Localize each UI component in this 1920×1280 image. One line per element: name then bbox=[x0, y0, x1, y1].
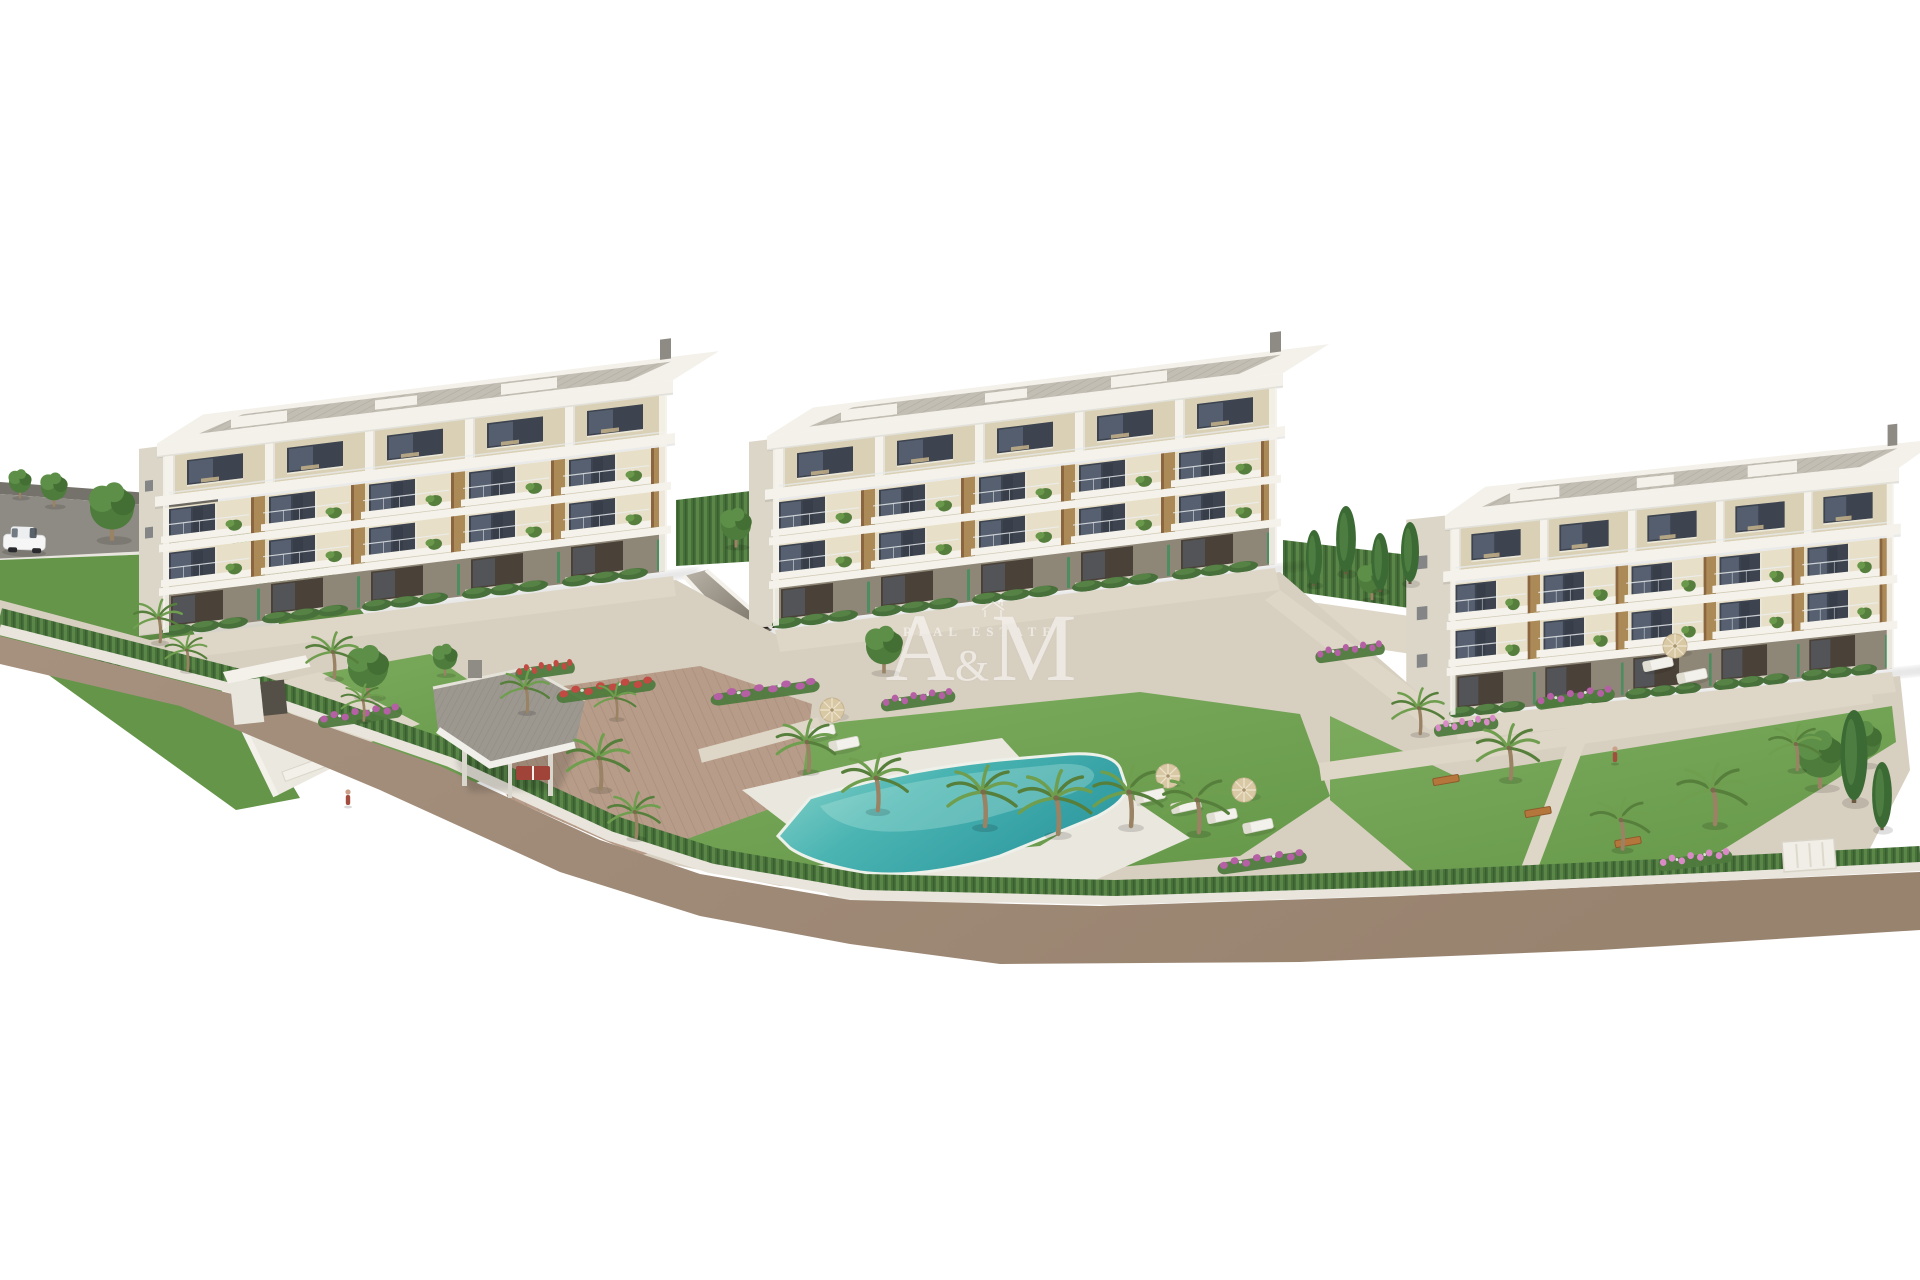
chimney bbox=[660, 338, 671, 360]
architectural-render: REAL ESTATE A & M bbox=[0, 0, 1920, 1280]
site-plan-render bbox=[0, 0, 1920, 1280]
side-gate bbox=[1782, 838, 1836, 872]
chimney bbox=[1270, 331, 1281, 353]
chimney bbox=[1888, 424, 1898, 446]
portal-doorway bbox=[260, 680, 287, 716]
pergola-chimney bbox=[468, 660, 482, 678]
